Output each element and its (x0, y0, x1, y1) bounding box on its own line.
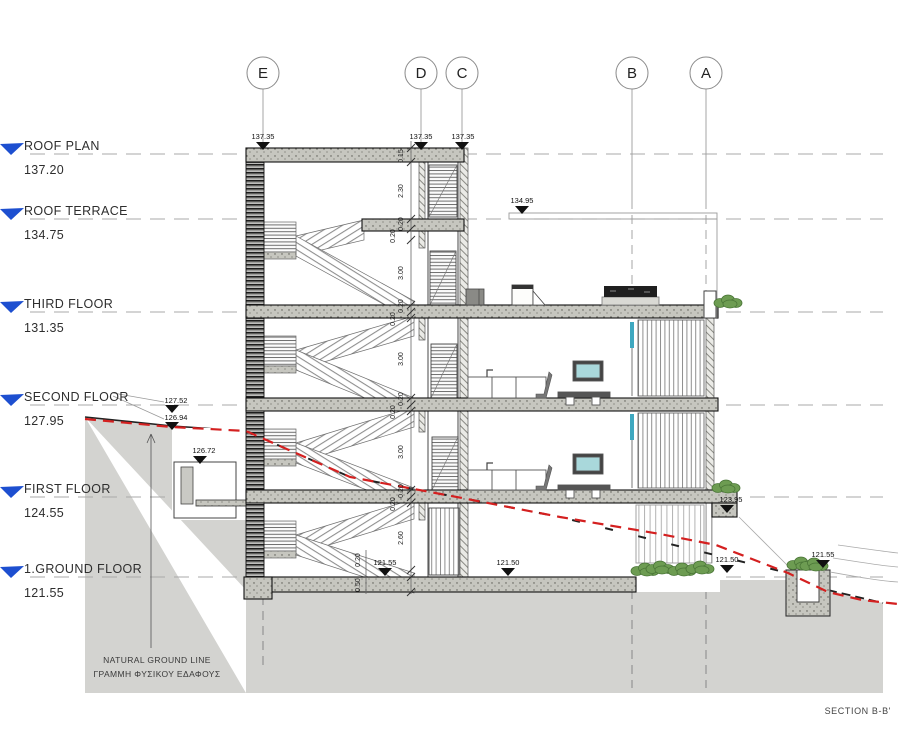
level-roof-terrace: ROOF TERRACE 134.75 (0, 204, 128, 242)
svg-text:B: B (627, 65, 637, 82)
level-marker-icon (0, 394, 24, 406)
dim-0-20: 0.20 (390, 229, 397, 243)
level-third-floor: THIRD FLOOR 131.35 (0, 297, 113, 335)
ac-unit (466, 289, 484, 305)
level-marker-icon (0, 143, 24, 155)
dim-0-20-footing: 0.20 (355, 553, 362, 567)
window-glass (576, 457, 600, 471)
dim-0-20: 0.20 (398, 484, 405, 498)
footing (244, 577, 272, 599)
level-marker-icon (0, 566, 24, 578)
dim-0-20: 0.20 (398, 392, 405, 406)
level-marker-icon (0, 208, 24, 220)
dim-3-00: 3.00 (398, 445, 405, 459)
sofa-base (602, 297, 659, 305)
lightwell (172, 428, 247, 520)
svg-text:123.95: 123.95 (720, 495, 743, 504)
svg-text:THIRD FLOOR: THIRD FLOOR (24, 297, 113, 311)
dim-2-30: 2.30 (398, 184, 405, 198)
svg-text:137.35: 137.35 (410, 132, 433, 141)
section-b-b-drawing: 0.15 2.30 0.20 0.20 3.00 0.20 0.20 3.00 … (0, 0, 900, 747)
shaft-door (429, 508, 459, 575)
svg-text:ΓΡΑΜΜΗ ΦΥΣΙΚΟΥ ΕΔΑΦΟΥΣ: ΓΡΑΜΜΗ ΦΥΣΙΚΟΥ ΕΔΑΦΟΥΣ (93, 669, 220, 679)
dim-3-00: 3.00 (398, 352, 405, 366)
level-marker-icon (0, 486, 24, 498)
table (558, 392, 610, 397)
west-wall (246, 148, 264, 578)
first-floor-slab (246, 490, 737, 503)
table (558, 485, 610, 490)
grid-c-wall (460, 148, 468, 577)
dim-0-50-footing: 0.50 (355, 578, 362, 592)
svg-text:121.55: 121.55 (24, 586, 64, 600)
grid-bubble-c: C (446, 57, 478, 89)
svg-text:FIRST FLOOR: FIRST FLOOR (24, 482, 111, 496)
svg-text:134.95: 134.95 (511, 196, 534, 205)
third-floor-slab (246, 305, 718, 318)
svg-text:126.72: 126.72 (193, 446, 216, 455)
dim-2-60: 2.60 (398, 531, 405, 545)
louver-screens (636, 320, 704, 563)
kitchen-counter (468, 377, 546, 398)
svg-text:E: E (258, 65, 268, 82)
roof-slab (246, 148, 464, 162)
svg-text:C: C (457, 65, 468, 82)
dim-0-20: 0.20 (390, 405, 397, 419)
dim-0-20: 0.20 (398, 217, 405, 231)
dim-0-20: 0.20 (398, 299, 405, 313)
svg-text:127.52: 127.52 (165, 396, 188, 405)
grid-bubbles: E D C B A (247, 57, 722, 89)
spot-triangle-icon (720, 565, 734, 573)
dim-0-20: 0.20 (390, 497, 397, 511)
dim-3-00: 3.00 (398, 266, 405, 280)
svg-text:124.55: 124.55 (24, 506, 64, 520)
section-drawing-sheet: 0.15 2.30 0.20 0.20 3.00 0.20 0.20 3.00 … (0, 0, 900, 747)
grid-bubble-e: E (247, 57, 279, 89)
spot-triangle-icon (165, 405, 179, 413)
svg-text:A: A (701, 65, 711, 82)
svg-text:ROOF TERRACE: ROOF TERRACE (24, 204, 128, 218)
svg-text:121.55: 121.55 (812, 550, 835, 559)
svg-text:121.55: 121.55 (374, 558, 397, 567)
terrace-slab (362, 219, 464, 231)
dim-0-20: 0.20 (390, 312, 397, 326)
second-floor-slab (246, 398, 718, 411)
svg-text:ROOF PLAN: ROOF PLAN (24, 139, 100, 153)
glazing-mullion (630, 322, 634, 348)
svg-text:134.75: 134.75 (24, 228, 64, 242)
svg-text:D: D (416, 65, 427, 82)
svg-text:137.20: 137.20 (24, 163, 64, 177)
window-glass (576, 364, 600, 378)
svg-text:SECOND FLOOR: SECOND FLOOR (24, 390, 129, 404)
grid-bubble-a: A (690, 57, 722, 89)
svg-text:126.94: 126.94 (165, 413, 188, 422)
svg-text:137.35: 137.35 (452, 132, 475, 141)
svg-text:127.95: 127.95 (24, 414, 64, 428)
spot-parapet-c: 137.35 (452, 132, 475, 150)
glazing-mullion (630, 414, 634, 440)
kitchen-counter (468, 470, 546, 490)
svg-text:131.35: 131.35 (24, 321, 64, 335)
planter-pit (786, 570, 830, 616)
section-title: SECTION B-B' (825, 706, 891, 716)
dim-0-15: 0.15 (398, 149, 405, 163)
ground-slab (246, 577, 636, 592)
svg-text:1.GROUND FLOOR: 1.GROUND FLOOR (24, 562, 142, 576)
grid-bubble-b: B (616, 57, 648, 89)
east-wall (706, 318, 714, 398)
level-marker-icon (0, 301, 24, 313)
svg-text:137.35: 137.35 (252, 132, 275, 141)
svg-text:NATURAL GROUND LINE: NATURAL GROUND LINE (103, 655, 211, 665)
spot-terrace-railing: 134.95 (511, 196, 534, 214)
level-roof-plan: ROOF PLAN 137.20 (0, 139, 100, 177)
chimney-cap (512, 285, 533, 289)
svg-text:121.50: 121.50 (497, 558, 520, 567)
grid-bubble-d: D (405, 57, 437, 89)
svg-text:121.50: 121.50 (716, 555, 739, 564)
